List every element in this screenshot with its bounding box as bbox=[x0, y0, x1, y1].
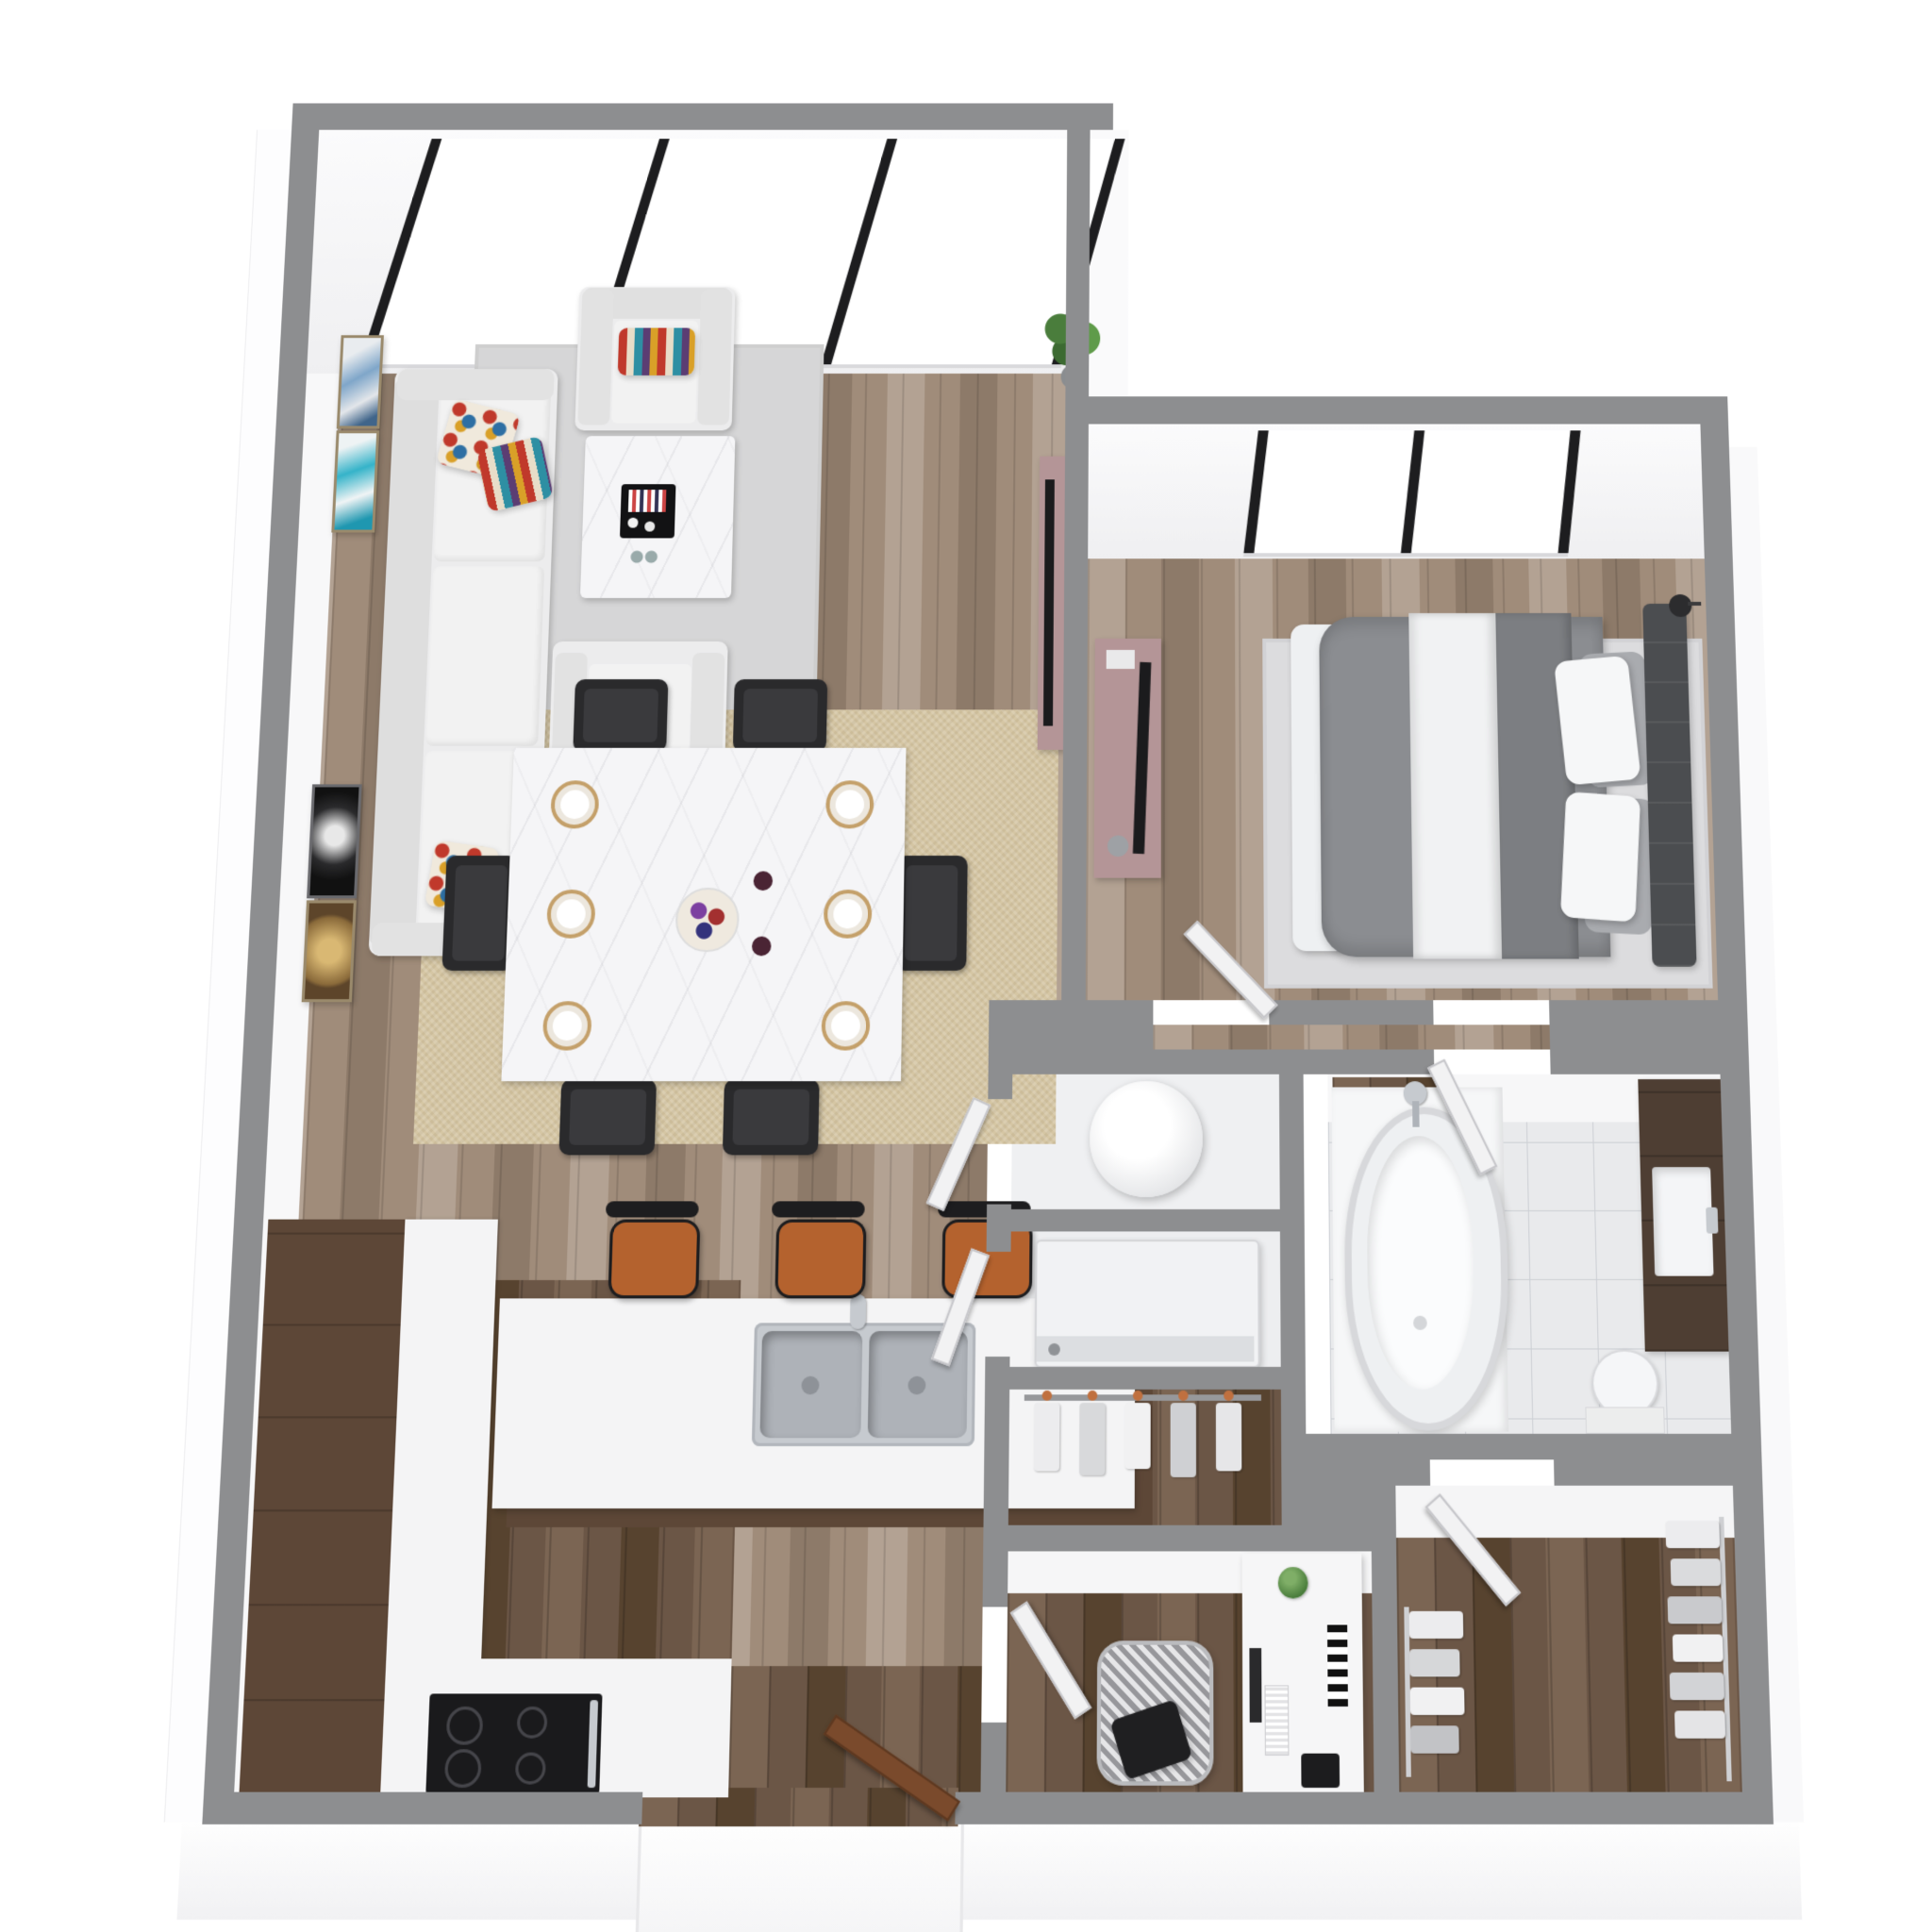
dining-chair bbox=[723, 1079, 820, 1155]
place-setting bbox=[821, 1001, 870, 1050]
dining-chair bbox=[441, 856, 517, 971]
bed-pillow-gray bbox=[1585, 796, 1656, 935]
cooktop bbox=[425, 1693, 602, 1794]
wall-bedroom-south bbox=[989, 1000, 1153, 1024]
window-frame-bar bbox=[359, 139, 441, 364]
bed-pillow-white bbox=[1554, 656, 1641, 786]
oven-handle bbox=[588, 1700, 598, 1788]
hanging-garment bbox=[1216, 1403, 1241, 1471]
water-heater-closet-floor bbox=[1011, 1074, 1280, 1209]
floors bbox=[71, 103, 1829, 1932]
sofa bbox=[368, 369, 558, 956]
armchair-south bbox=[546, 641, 728, 844]
wall-art bbox=[337, 335, 384, 428]
bed-pillow-white bbox=[1560, 791, 1641, 923]
coffee-table-tray bbox=[620, 484, 675, 538]
armchair-arm bbox=[688, 653, 725, 840]
bed-base bbox=[1291, 625, 1351, 951]
wall-mass bbox=[1550, 1024, 1749, 1049]
countertop-south bbox=[380, 1658, 732, 1797]
left-inner-wall-face bbox=[234, 374, 340, 1792]
hanging-garment bbox=[1667, 1596, 1722, 1624]
green-vase bbox=[1278, 1567, 1308, 1598]
washer-knob bbox=[1048, 1343, 1060, 1356]
window-frame-bar bbox=[1557, 430, 1580, 553]
washer-closet-floor bbox=[1009, 1231, 1280, 1367]
wall-closet-north bbox=[1371, 1459, 1430, 1485]
bedroom-door bbox=[1184, 921, 1278, 1019]
dining-rug bbox=[413, 709, 1058, 1143]
walkin-closet-door bbox=[1425, 1493, 1522, 1607]
living-floor-lower bbox=[234, 1000, 990, 1797]
floor-plan-scene bbox=[71, 103, 1829, 1932]
living-floor-upper bbox=[275, 374, 1065, 1000]
room-kitchen bbox=[71, 103, 1829, 1932]
hanging-garment bbox=[1034, 1403, 1060, 1471]
vanity bbox=[1638, 1079, 1728, 1352]
counter-cabinet-run bbox=[239, 1220, 405, 1798]
bathroom-north-face bbox=[1327, 1074, 1722, 1123]
office-floor bbox=[1006, 1551, 1374, 1791]
room-living bbox=[71, 103, 1829, 1932]
window-frame-bar bbox=[1401, 430, 1424, 553]
bar-stool bbox=[608, 1220, 700, 1299]
hanging-rod bbox=[1024, 1394, 1261, 1401]
wall-office-closet bbox=[1371, 1459, 1399, 1791]
wall-north-bedroom bbox=[1065, 396, 1728, 424]
chair-cushion-black bbox=[1109, 1699, 1192, 1780]
sofa-cushion bbox=[418, 751, 538, 935]
plant-leaves bbox=[1041, 309, 1106, 374]
living-north-wall-face bbox=[307, 130, 1067, 374]
living-rug bbox=[459, 344, 824, 737]
magazine bbox=[628, 490, 667, 512]
window-frame-bar bbox=[591, 139, 670, 364]
stool-back bbox=[938, 1201, 1031, 1217]
tv-console-bedroom bbox=[1094, 639, 1161, 878]
bathroom-floor bbox=[1327, 1074, 1731, 1434]
dining-chair bbox=[558, 1079, 657, 1155]
armchair-back bbox=[583, 288, 730, 319]
wall-south bbox=[955, 1792, 1774, 1824]
left-exterior-face bbox=[164, 130, 292, 1823]
lamp-shade bbox=[1669, 594, 1692, 617]
wall-mass bbox=[989, 1024, 1154, 1049]
window-frame-bar bbox=[1243, 430, 1268, 553]
washer-closet-door bbox=[931, 1248, 990, 1366]
right-exterior-face bbox=[1729, 447, 1804, 1823]
wall-north-living bbox=[291, 103, 1113, 129]
rugs bbox=[71, 103, 1829, 1932]
desk-art bbox=[1327, 1624, 1348, 1707]
wall-laundry-stub bbox=[1011, 1209, 1280, 1232]
armchair-north bbox=[575, 287, 735, 430]
headboard bbox=[1642, 604, 1696, 967]
window-frame-bar bbox=[1052, 139, 1125, 364]
carafe bbox=[753, 871, 773, 891]
wall-living-east-lower bbox=[988, 1050, 1012, 1100]
office-north-face bbox=[1008, 1551, 1372, 1592]
armchair-back bbox=[551, 809, 719, 842]
sofa-armrest bbox=[397, 369, 555, 400]
bed-duvet bbox=[1319, 617, 1610, 957]
room-bedroom bbox=[71, 103, 1829, 1932]
wall-laundry-east bbox=[1279, 1074, 1307, 1525]
wall-south bbox=[202, 1792, 642, 1824]
sink-drain bbox=[908, 1376, 925, 1395]
entry-doorway-floor bbox=[639, 1788, 958, 1826]
tv-console-living bbox=[1038, 457, 1066, 750]
hanging-garment bbox=[1409, 1649, 1460, 1676]
sink-faucet bbox=[850, 1294, 866, 1329]
hanger-hook bbox=[1178, 1391, 1188, 1401]
bar-stool bbox=[941, 1220, 1032, 1299]
wall-bedroom-south bbox=[1549, 1000, 1748, 1024]
tub-interior bbox=[1366, 1136, 1475, 1390]
wall-office-north bbox=[983, 1525, 1396, 1552]
kitchen-sink bbox=[752, 1323, 976, 1446]
office-door bbox=[1010, 1601, 1091, 1719]
room-laundry bbox=[71, 103, 1829, 1932]
espresso-cup bbox=[644, 522, 655, 532]
exterior-faces bbox=[71, 103, 1829, 1932]
hanging-garment bbox=[1124, 1403, 1150, 1469]
closet-north-face bbox=[1395, 1486, 1734, 1538]
hanger-hook bbox=[1042, 1391, 1053, 1401]
window-frame-bar bbox=[821, 139, 897, 364]
bar-stool bbox=[774, 1220, 866, 1299]
walkin-closet-floor bbox=[1395, 1486, 1741, 1792]
television bbox=[1043, 479, 1055, 725]
walls bbox=[71, 103, 1829, 1932]
hanging-garment bbox=[1409, 1611, 1464, 1639]
burner bbox=[517, 1707, 548, 1739]
place-setting bbox=[546, 890, 596, 939]
washer bbox=[1035, 1240, 1260, 1368]
hanger-hook bbox=[1133, 1391, 1142, 1401]
burner bbox=[444, 1749, 482, 1788]
wall-bath-north bbox=[989, 1050, 1435, 1074]
sofa-cushion bbox=[434, 390, 551, 561]
kitchen-floor bbox=[234, 1280, 741, 1797]
floor-plan-canvas bbox=[0, 0, 1932, 1932]
room-walkin-closet bbox=[71, 103, 1829, 1932]
espresso-cup bbox=[627, 518, 638, 528]
stool-back bbox=[772, 1201, 865, 1217]
bedroom-north-wall-face bbox=[1088, 425, 1705, 559]
hanging-garment bbox=[1674, 1710, 1725, 1738]
hanging-garment bbox=[1665, 1521, 1720, 1548]
dining-chair bbox=[895, 856, 968, 971]
hanging-garment bbox=[1670, 1673, 1724, 1700]
office-desk bbox=[1242, 1554, 1364, 1792]
stool-back bbox=[606, 1201, 699, 1217]
place-setting bbox=[825, 780, 874, 828]
place-setting bbox=[824, 890, 873, 939]
room-office bbox=[71, 103, 1829, 1932]
burner bbox=[515, 1753, 546, 1785]
potted-plant bbox=[1033, 308, 1108, 390]
sink-drain bbox=[801, 1376, 819, 1395]
wall-living-east-lower bbox=[983, 1551, 1008, 1607]
armchair-arm bbox=[697, 290, 732, 425]
throw-pillow bbox=[425, 840, 500, 914]
wall-art bbox=[331, 430, 379, 532]
bed-blanket-white bbox=[1408, 613, 1502, 959]
toilet-tank bbox=[1585, 1407, 1665, 1433]
bath-wood-mat bbox=[1332, 1077, 1438, 1137]
sink-basin bbox=[868, 1331, 968, 1438]
toilet-bowl bbox=[1591, 1349, 1659, 1417]
bedroom-window bbox=[1243, 430, 1581, 557]
sofa-backrest bbox=[369, 378, 440, 946]
room-bathroom bbox=[71, 103, 1829, 1932]
wall-west bbox=[202, 103, 320, 1824]
hanger-hook bbox=[1088, 1391, 1098, 1401]
water-heater bbox=[1090, 1081, 1203, 1197]
office-chair bbox=[1096, 1641, 1213, 1786]
wall-bedroom-south bbox=[1269, 1000, 1433, 1024]
hanging-garment bbox=[1673, 1634, 1724, 1661]
vanity-sink bbox=[1652, 1167, 1713, 1276]
wall-art bbox=[302, 900, 357, 1002]
armchair-arm bbox=[549, 653, 588, 840]
entry-vestibule-face bbox=[634, 1823, 964, 1932]
burner bbox=[446, 1707, 484, 1745]
place-setting bbox=[550, 780, 599, 828]
bedroom-floor bbox=[1086, 558, 1718, 1000]
countertop bbox=[386, 1220, 498, 1675]
armchair-cushion bbox=[586, 664, 691, 752]
throw-pillow bbox=[618, 328, 695, 375]
washer-front-panel bbox=[1037, 1336, 1255, 1361]
freestanding-tub bbox=[1343, 1108, 1510, 1431]
tub-faucet-stem bbox=[1412, 1101, 1420, 1126]
wall-bath-north bbox=[1550, 1050, 1749, 1074]
sofa-armrest bbox=[372, 923, 535, 956]
dining-chair bbox=[573, 679, 668, 752]
wall-laundry-stub bbox=[1009, 1367, 1281, 1390]
entry-door bbox=[824, 1715, 960, 1822]
dining-chair bbox=[733, 679, 827, 752]
throw-pillow bbox=[476, 436, 554, 512]
wall-art bbox=[307, 784, 362, 898]
wall-east bbox=[1700, 396, 1774, 1824]
desk-monitor bbox=[1249, 1648, 1261, 1723]
plant-pot bbox=[1061, 364, 1087, 389]
decor-cups bbox=[630, 547, 663, 566]
entry-floor bbox=[728, 1666, 982, 1797]
wall-living-bedroom bbox=[1061, 103, 1091, 1024]
notch-wall-face bbox=[1089, 130, 1128, 397]
hanger-hook bbox=[1224, 1391, 1233, 1401]
tub-drain bbox=[1413, 1316, 1427, 1330]
sink-basin bbox=[759, 1331, 862, 1438]
sofa-cushion bbox=[425, 566, 544, 746]
dining-table bbox=[501, 748, 906, 1081]
fruit-bowl bbox=[675, 888, 740, 952]
tub-faucet bbox=[1404, 1081, 1427, 1105]
bottom-extrusion-face bbox=[176, 1823, 1802, 1920]
office-bag bbox=[1301, 1754, 1340, 1788]
wall-bath-south bbox=[1306, 1434, 1761, 1459]
television bbox=[1133, 662, 1152, 854]
hanging-garment bbox=[1671, 1558, 1722, 1586]
vanity-faucet bbox=[1706, 1207, 1718, 1234]
carafe bbox=[752, 937, 772, 957]
wall-mass bbox=[1281, 1434, 1396, 1552]
place-setting bbox=[542, 1001, 592, 1050]
throw-pillow bbox=[436, 398, 521, 479]
decor-ball bbox=[1108, 836, 1128, 858]
wall-living-east-lower bbox=[980, 1723, 1006, 1792]
coffee-table bbox=[580, 436, 735, 598]
hanging-garment bbox=[1410, 1725, 1459, 1753]
reading-lamp bbox=[1661, 587, 1700, 625]
island-base bbox=[507, 1312, 1153, 1526]
hanging-garment bbox=[1410, 1688, 1465, 1715]
bed-pillow-gray bbox=[1578, 651, 1655, 788]
closet-rod-right bbox=[1719, 1517, 1732, 1781]
tub-surround bbox=[1332, 1087, 1509, 1431]
bed-blanket-gray bbox=[1495, 613, 1578, 959]
lamp-arm bbox=[1688, 602, 1701, 606]
hanging-garment bbox=[1079, 1403, 1106, 1475]
throw-pillow bbox=[591, 750, 684, 804]
decor-box bbox=[1107, 650, 1135, 669]
wall-living-east-lower bbox=[987, 1205, 1011, 1252]
armchair-cushion bbox=[611, 321, 698, 424]
room-dining bbox=[71, 103, 1829, 1932]
desk-keyboard bbox=[1264, 1685, 1289, 1756]
armchair-arm bbox=[577, 290, 613, 425]
hanging-garment bbox=[1171, 1403, 1196, 1477]
wall-living-east-lower bbox=[984, 1357, 1010, 1525]
heater-closet-door bbox=[926, 1097, 991, 1211]
bedroom-rug bbox=[1262, 639, 1712, 989]
closet-rod-left bbox=[1404, 1607, 1411, 1776]
hall-threshold-floor bbox=[1153, 1024, 1550, 1049]
island-top bbox=[492, 1298, 1136, 1508]
hanging-closet-floor bbox=[1008, 1390, 1282, 1525]
doors bbox=[71, 103, 1829, 1932]
wall-faces-and-windows bbox=[71, 103, 1829, 1932]
living-window bbox=[358, 139, 1125, 368]
bathroom-door bbox=[1427, 1059, 1497, 1175]
wall-closet-north bbox=[1554, 1459, 1762, 1485]
